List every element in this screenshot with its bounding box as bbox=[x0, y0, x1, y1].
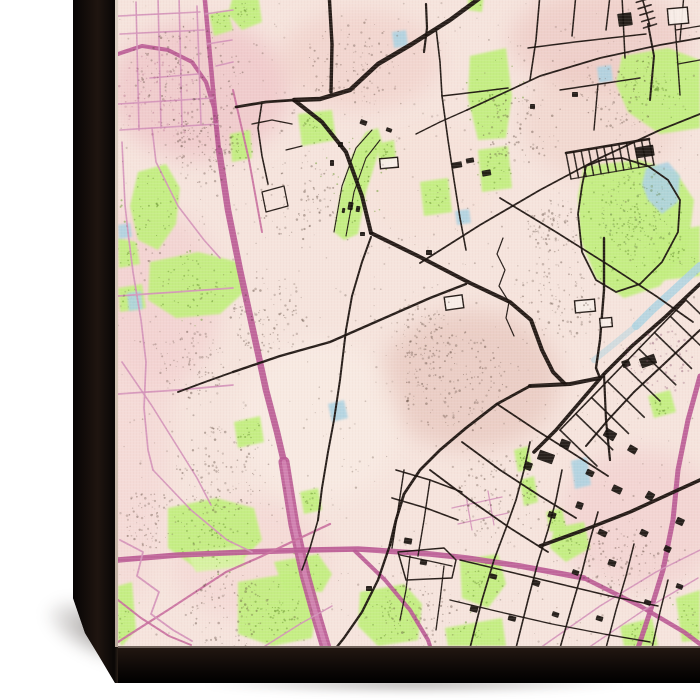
product-photo-background bbox=[0, 0, 700, 700]
canvas-print bbox=[73, 0, 700, 683]
canvas-edge-highlight bbox=[115, 0, 118, 647]
map-artwork-svg bbox=[118, 0, 700, 646]
canvas-fold-line bbox=[118, 646, 700, 648]
map-canvas-face bbox=[118, 0, 700, 646]
